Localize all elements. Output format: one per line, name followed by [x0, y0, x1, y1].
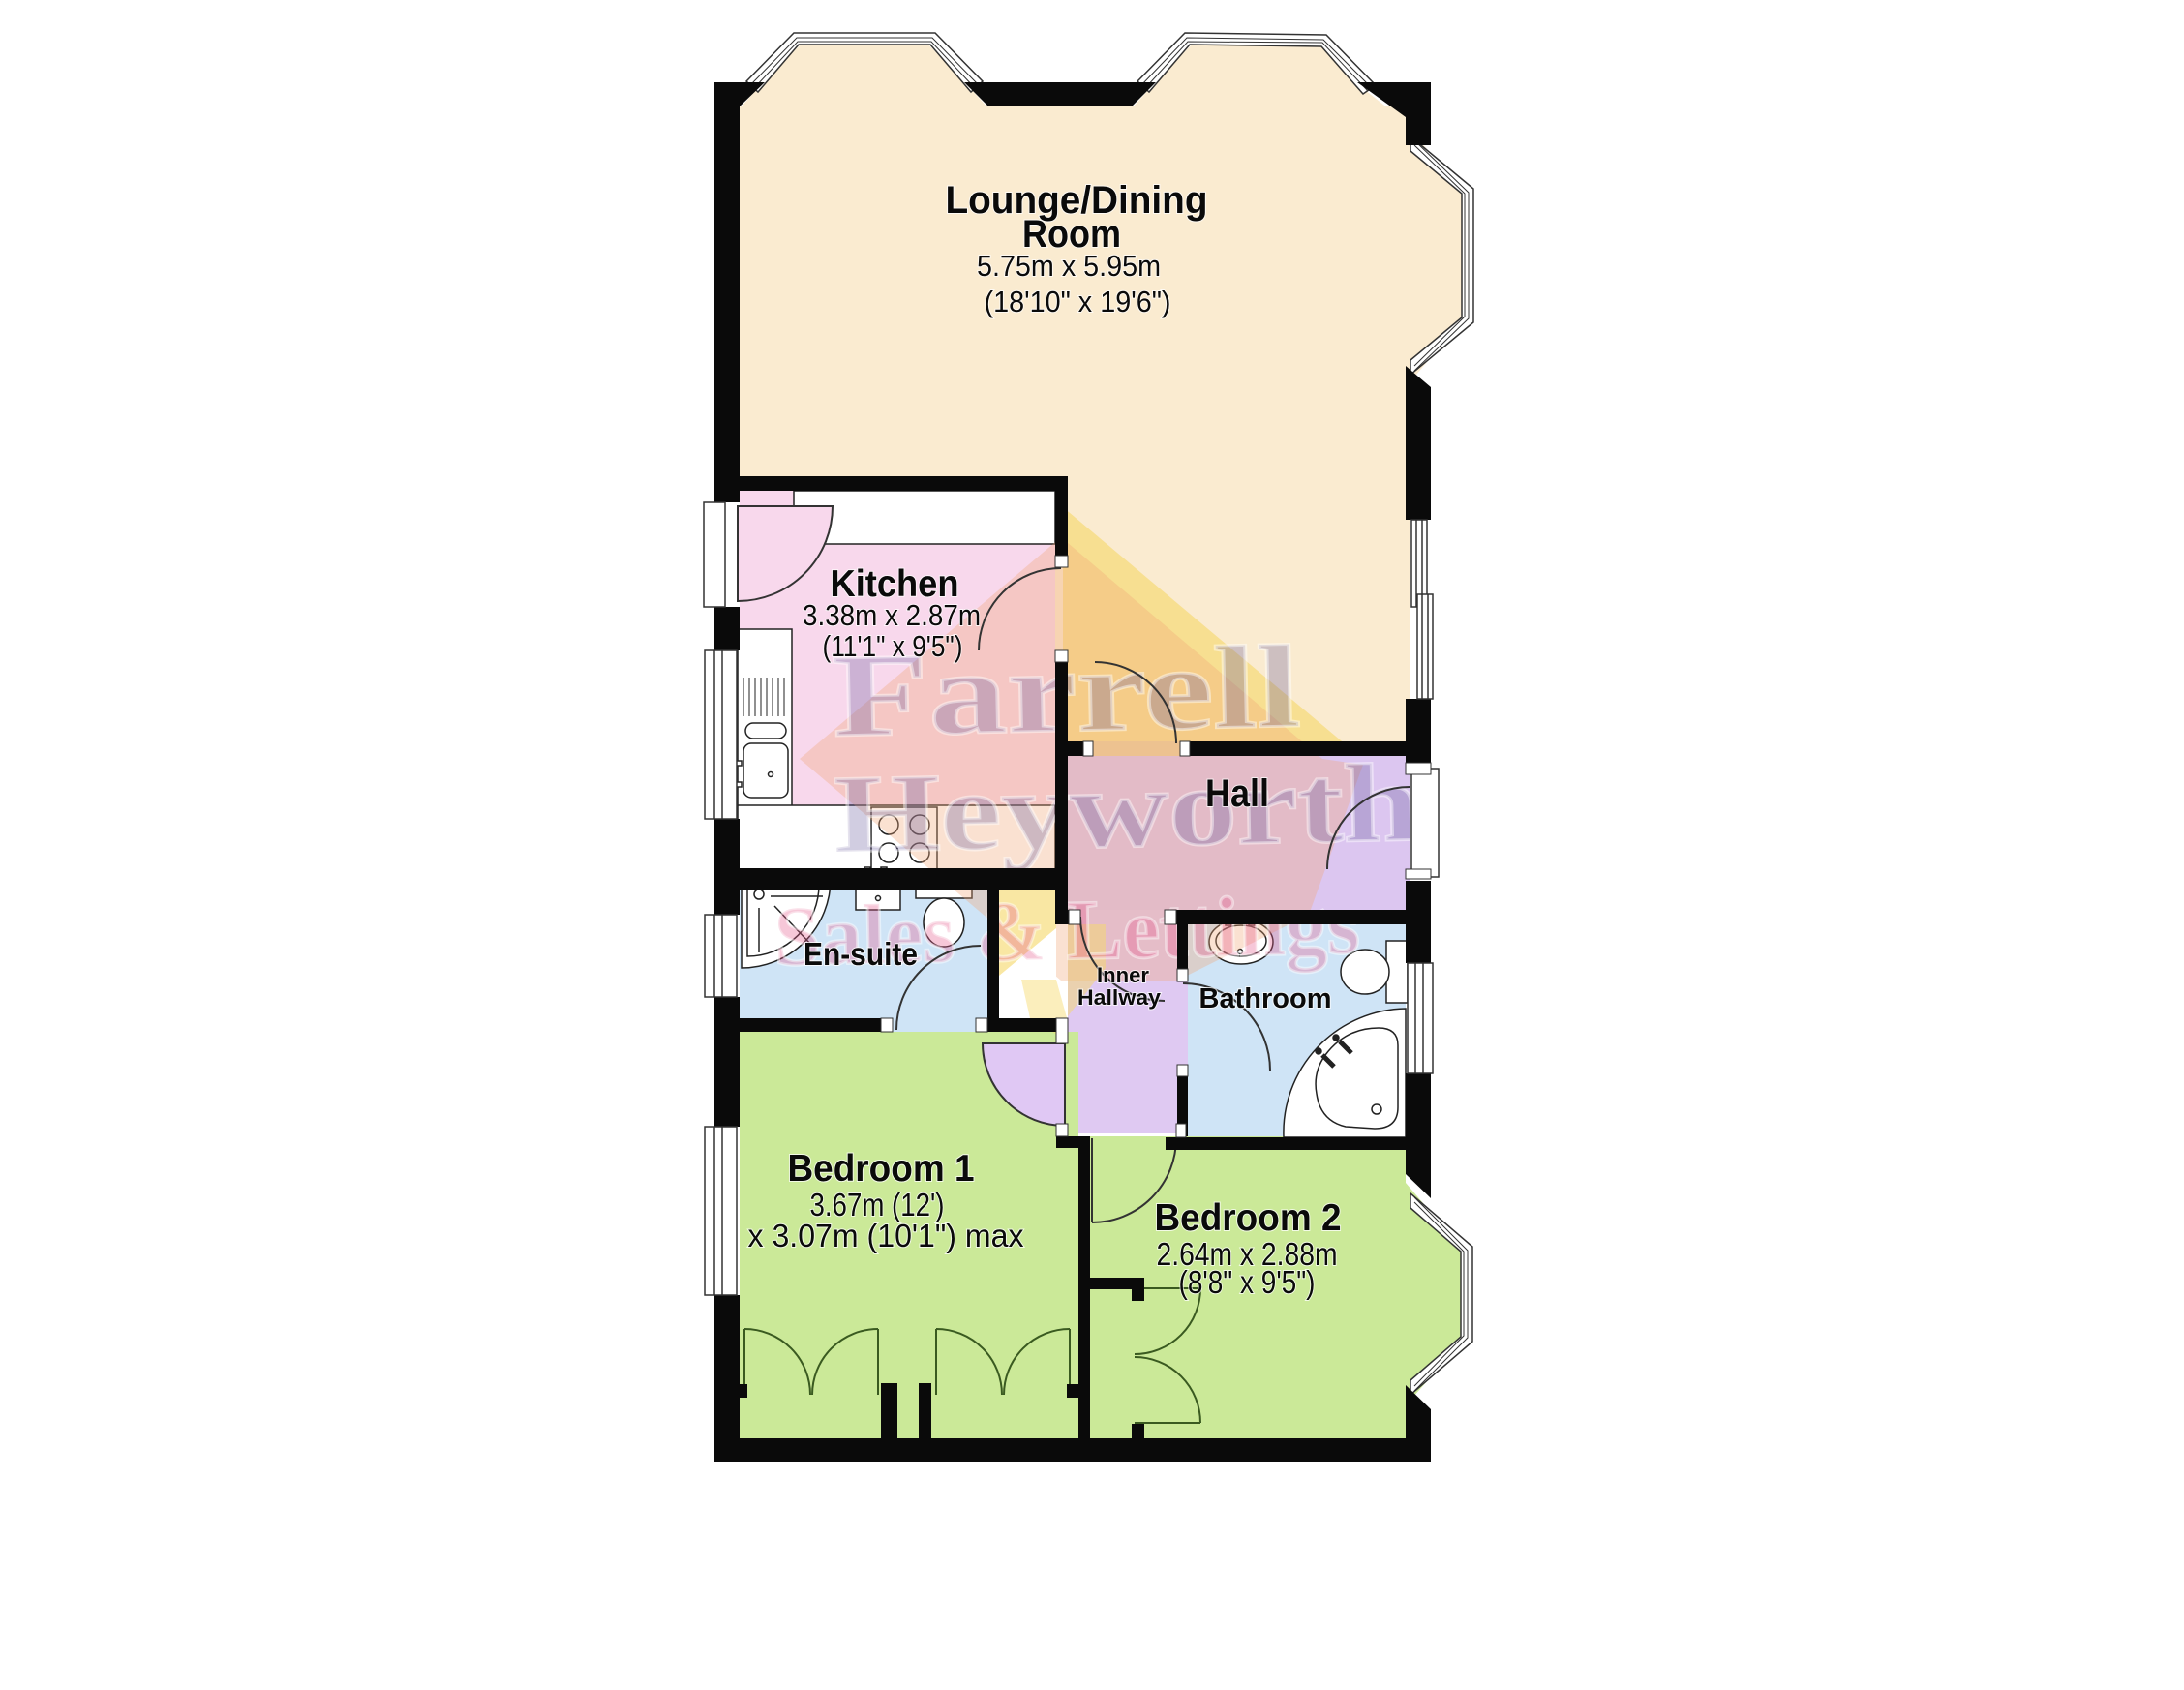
svg-text:3.38m x 2.87m: 3.38m x 2.87m [803, 598, 981, 632]
svg-text:(18'10" x 19'6"): (18'10" x 19'6") [985, 285, 1171, 318]
svg-text:Heyworth: Heyworth [833, 740, 1421, 876]
svg-text:Bedroom 2: Bedroom 2 [1155, 1197, 1342, 1239]
svg-text:Hall: Hall [1205, 772, 1269, 815]
svg-text:Bedroom 1: Bedroom 1 [788, 1148, 975, 1190]
svg-text:En-suite: En-suite [804, 936, 918, 972]
svg-text:5.75m x 5.95m: 5.75m x 5.95m [977, 249, 1161, 283]
svg-text:(8'8" x 9'5"): (8'8" x 9'5") [1179, 1264, 1316, 1300]
svg-text:x 3.07m (10'1") max: x 3.07m (10'1") max [748, 1218, 1024, 1253]
svg-text:Bathroom: Bathroom [1199, 983, 1332, 1014]
svg-text:Inner: Inner [1097, 963, 1149, 987]
svg-text:(11'1" x 9'5"): (11'1" x 9'5") [823, 629, 963, 663]
svg-text:Hallway: Hallway [1077, 985, 1162, 1010]
